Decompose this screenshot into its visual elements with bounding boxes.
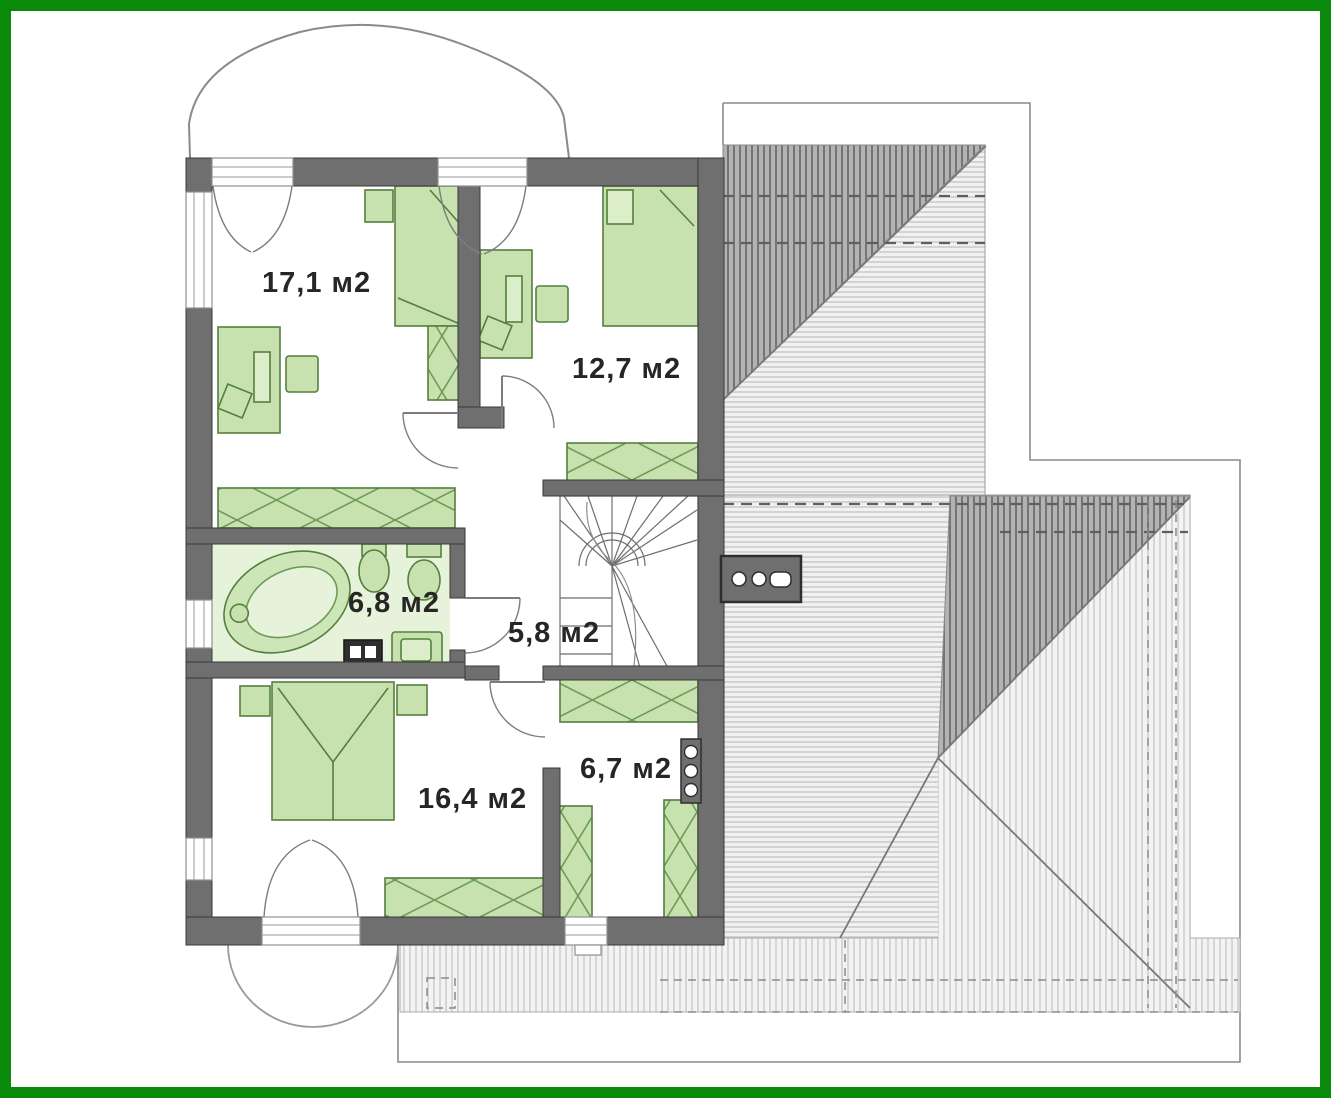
room-area-label: 17,1 м2 bbox=[262, 267, 371, 299]
wardrobe bbox=[560, 678, 698, 722]
nightstand bbox=[365, 190, 393, 222]
door-step bbox=[575, 945, 601, 955]
chimney bbox=[681, 739, 701, 803]
nightstand bbox=[240, 686, 270, 716]
door-sill bbox=[565, 917, 607, 945]
room-area-label: 6,7 м2 bbox=[580, 753, 672, 785]
double-bed bbox=[272, 682, 394, 820]
chair bbox=[286, 356, 318, 392]
chair bbox=[536, 286, 568, 322]
window bbox=[186, 600, 212, 648]
wardrobe bbox=[218, 488, 455, 528]
floor-plan-canvas: 17,1 м2 12,7 м2 6,8 м2 5,8 м2 16,4 м2 6,… bbox=[0, 0, 1331, 1098]
desk bbox=[218, 327, 280, 433]
front-roof-arc bbox=[189, 25, 569, 158]
floor-plan-drawing: 17,1 м2 12,7 м2 6,8 м2 5,8 м2 16,4 м2 6,… bbox=[0, 0, 1331, 1098]
balcony-arc bbox=[228, 945, 398, 1027]
window bbox=[212, 158, 293, 186]
wardrobe bbox=[385, 878, 545, 918]
single-bed bbox=[603, 186, 698, 326]
wardrobe bbox=[428, 326, 462, 400]
balcony-door-sill bbox=[262, 917, 360, 945]
door-swing bbox=[502, 376, 554, 428]
chimney bbox=[721, 556, 801, 602]
door-swing bbox=[490, 682, 545, 737]
nightstand bbox=[397, 685, 427, 715]
room-area-label: 5,8 м2 bbox=[508, 617, 600, 649]
wardrobe bbox=[558, 806, 592, 918]
room-area-label: 16,4 м2 bbox=[418, 783, 527, 815]
single-bed bbox=[395, 186, 462, 326]
window bbox=[186, 192, 212, 308]
window bbox=[438, 158, 527, 186]
window bbox=[186, 838, 212, 880]
window-swing-arc bbox=[213, 186, 251, 252]
balcony-door-swing bbox=[264, 840, 310, 917]
door-swing bbox=[403, 413, 458, 468]
wardrobe bbox=[664, 800, 698, 918]
wall-segment bbox=[186, 158, 212, 192]
sink bbox=[359, 544, 389, 592]
room-area-label: 6,8 м2 bbox=[348, 587, 440, 619]
room-area-label: 12,7 м2 bbox=[572, 353, 681, 385]
